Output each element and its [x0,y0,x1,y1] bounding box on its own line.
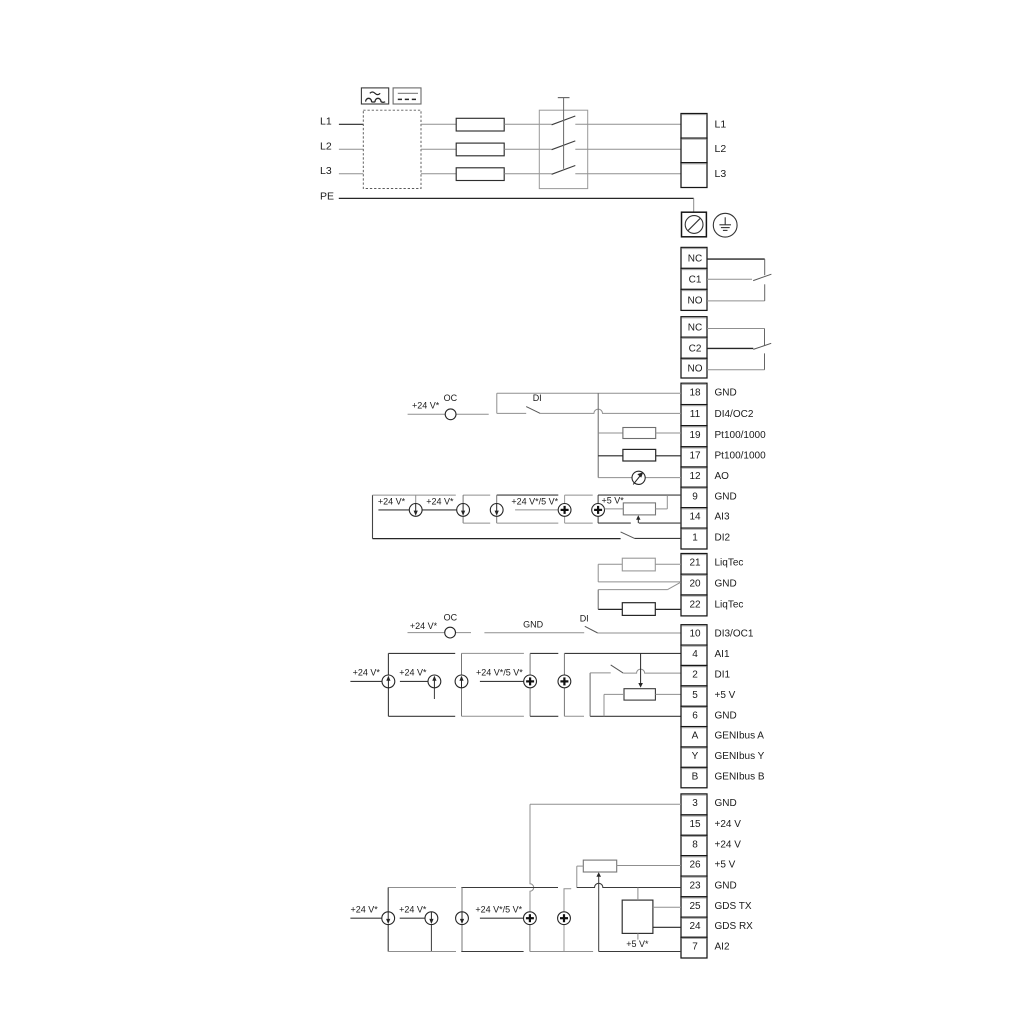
svg-text:+24 V*/5 V*: +24 V*/5 V* [475,905,522,915]
svg-text:AI1: AI1 [715,649,730,660]
svg-text:5: 5 [692,690,698,701]
svg-text:15: 15 [689,819,701,830]
svg-text:Y: Y [692,751,699,762]
svg-text:+24 V*: +24 V* [410,621,438,631]
svg-text:+24 V: +24 V [715,819,742,830]
svg-text:+5 V: +5 V [715,860,736,871]
svg-text:24: 24 [689,921,701,932]
svg-text:+5 V: +5 V [715,690,736,701]
svg-text:C1: C1 [689,274,702,285]
svg-text:7: 7 [692,941,698,952]
svg-text:GDS TX: GDS TX [715,901,752,912]
svg-text:+24 V*/5 V*: +24 V*/5 V* [476,668,523,678]
svg-text:26: 26 [689,860,701,871]
svg-text:AI3: AI3 [715,512,730,523]
svg-text:23: 23 [689,880,701,891]
svg-text:6: 6 [692,710,698,721]
svg-text:20: 20 [689,578,701,589]
svg-text:DI: DI [533,393,542,403]
svg-text:Pt100/1000: Pt100/1000 [715,451,767,462]
svg-text:25: 25 [689,901,701,912]
svg-text:GND: GND [715,578,737,589]
svg-text:GND: GND [715,388,737,399]
svg-text:+24 V*: +24 V* [378,496,406,506]
svg-text:22: 22 [689,599,701,610]
svg-text:NO: NO [688,295,703,306]
svg-text:GND: GND [715,880,737,891]
svg-text:AI2: AI2 [715,941,730,952]
svg-text:DI1: DI1 [715,670,731,681]
svg-text:GND: GND [715,798,737,809]
svg-text:GDS RX: GDS RX [715,921,754,932]
svg-text:L1: L1 [715,119,727,131]
svg-text:11: 11 [690,409,701,420]
svg-text:+5 V*: +5 V* [626,939,649,949]
svg-text:1: 1 [692,532,698,543]
svg-text:+24 V*: +24 V* [353,668,381,678]
svg-text:GENIbus A: GENIbus A [715,731,765,742]
svg-text:+24 V*: +24 V* [412,400,440,410]
svg-text:+24 V*: +24 V* [399,668,427,678]
svg-text:NC: NC [688,322,702,333]
svg-text:3: 3 [692,798,698,809]
svg-text:14: 14 [689,512,701,523]
svg-text:PE: PE [320,191,334,203]
svg-text:GENIbus B: GENIbus B [715,771,765,782]
svg-text:L2: L2 [320,140,332,152]
svg-text:OC: OC [444,613,458,623]
svg-text:C2: C2 [689,343,702,354]
svg-text:10: 10 [689,629,701,640]
svg-text:DI: DI [580,613,589,623]
svg-text:18: 18 [689,388,701,399]
svg-text:9: 9 [692,491,698,502]
svg-text:B: B [692,771,699,782]
svg-text:NC: NC [688,253,702,264]
svg-text:8: 8 [692,839,698,850]
svg-text:L1: L1 [320,116,332,128]
svg-text:+24 V*: +24 V* [426,496,454,506]
svg-text:OC: OC [444,393,458,403]
svg-text:GND: GND [523,619,544,629]
svg-text:DI4/OC2: DI4/OC2 [715,409,754,420]
svg-text:AO: AO [715,471,730,482]
svg-text:21: 21 [689,558,701,569]
svg-text:+24 V*: +24 V* [399,905,427,915]
svg-text:LiqTec: LiqTec [715,558,744,569]
svg-text:+5 V*: +5 V* [602,495,625,505]
svg-text:A: A [692,731,699,742]
svg-text:+24 V*/5 V*: +24 V*/5 V* [511,496,558,506]
svg-text:GND: GND [715,491,737,502]
svg-text:DI2: DI2 [715,532,731,543]
svg-text:2: 2 [692,670,698,681]
svg-text:Pt100/1000: Pt100/1000 [715,430,767,441]
svg-text:+24 V*: +24 V* [351,905,379,915]
svg-text:+24 V: +24 V [715,839,742,850]
svg-text:12: 12 [689,471,701,482]
svg-text:GENIbus Y: GENIbus Y [715,751,765,762]
svg-text:LiqTec: LiqTec [715,599,744,610]
svg-text:NO: NO [688,364,703,375]
svg-text:L3: L3 [715,168,727,180]
svg-text:17: 17 [689,451,701,462]
svg-text:GND: GND [715,710,737,721]
svg-text:DI3/OC1: DI3/OC1 [715,629,754,640]
svg-text:4: 4 [692,649,698,660]
svg-text:19: 19 [689,430,701,441]
svg-text:L3: L3 [320,165,332,177]
svg-text:L2: L2 [715,143,727,155]
